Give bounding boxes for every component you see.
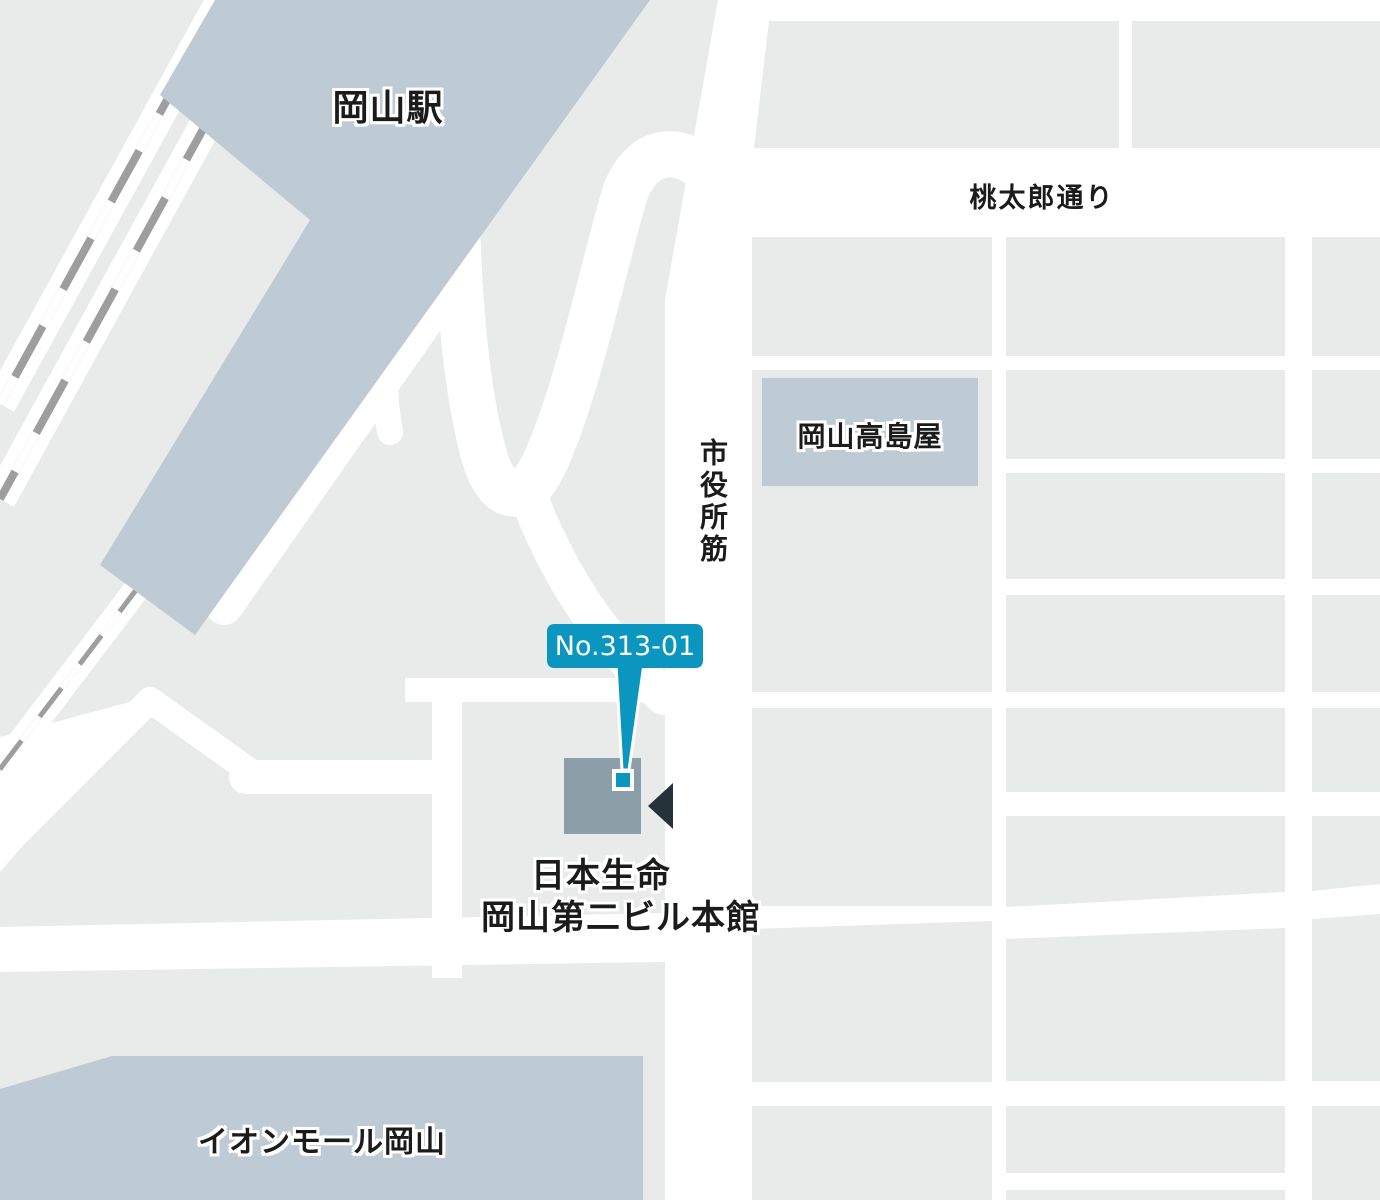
city-block [1312, 1106, 1380, 1200]
city-block [1132, 21, 1380, 148]
destination-name-line2: 岡山第二ビル本館 [481, 890, 761, 939]
takashimaya-label: 岡山高島屋 [797, 415, 942, 455]
city-block [1006, 1190, 1285, 1200]
city-block [752, 1106, 992, 1200]
city-block [1312, 237, 1380, 356]
city-block [1006, 370, 1285, 459]
momotaro-street-label: 桃太郎通り [970, 176, 1115, 215]
city-block [1312, 473, 1380, 579]
city-block [1312, 914, 1380, 1081]
city-block [1006, 473, 1285, 579]
city-block [1312, 816, 1380, 891]
station-label: 岡山駅 [332, 79, 443, 131]
location-callout-badge: No.313-01 [547, 624, 703, 668]
access-map: 岡山駅 桃太郎通り 市役所筋 岡山高島屋 日本生命 岡山第二ビル本館 イオンモー… [0, 0, 1380, 1200]
city-block [752, 708, 992, 906]
city-block [1006, 1106, 1285, 1173]
aeon-mall-label: イオンモール岡山 [198, 1117, 446, 1161]
callout-number: No.313-01 [555, 631, 695, 662]
city-block [1312, 595, 1380, 692]
city-block [1006, 595, 1285, 692]
city-block [1312, 708, 1380, 792]
city-block [752, 921, 992, 1082]
city-block [752, 237, 992, 356]
city-block [1312, 370, 1380, 459]
city-block [1006, 237, 1285, 356]
city-block [1006, 928, 1285, 1081]
city-block [1006, 708, 1285, 792]
map-canvas [0, 0, 1380, 1200]
city-block [1006, 816, 1285, 907]
city-block [754, 21, 1119, 148]
map-pin-icon [614, 771, 632, 789]
shiyakusho-suji-label: 市役所筋 [698, 438, 726, 566]
